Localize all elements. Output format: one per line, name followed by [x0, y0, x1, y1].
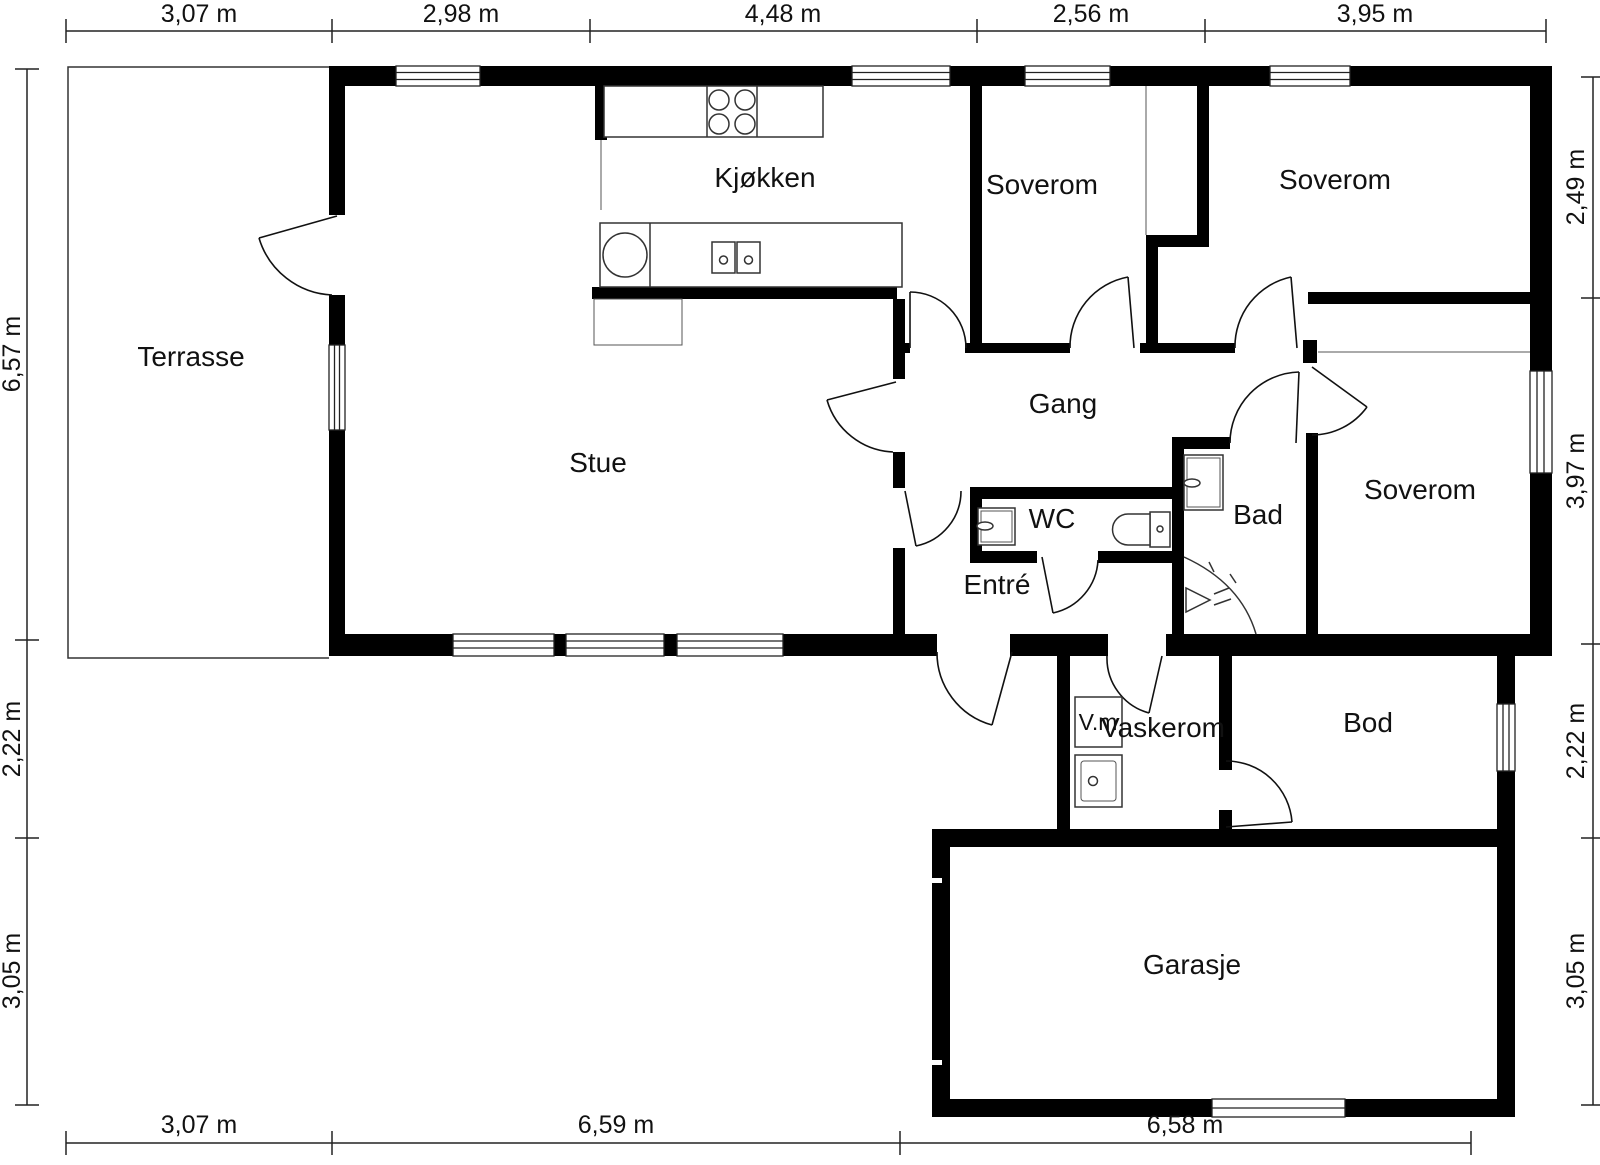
wall-segment — [480, 66, 852, 86]
wall-segment — [1146, 235, 1209, 247]
dim-top-1: 3,07 m — [161, 0, 237, 28]
room-label-bod: Bod — [1343, 707, 1393, 738]
wall-segment — [1146, 247, 1158, 353]
wall-segment — [1010, 634, 1108, 656]
dim-left-1: 6,57 m — [0, 316, 26, 392]
wall-segment — [329, 430, 345, 656]
dim-left-2: 2,22 m — [0, 701, 26, 777]
wall-segment — [970, 551, 1037, 563]
wall-segment — [1308, 292, 1530, 304]
window — [677, 634, 783, 656]
dim-right-2: 3,97 m — [1562, 433, 1590, 509]
wall-segment — [970, 86, 982, 353]
dim-bottom-2: 6,59 m — [578, 1111, 654, 1139]
dim-top-3: 4,48 m — [745, 0, 821, 28]
wall-notch — [932, 878, 942, 883]
room-label-kjokken: Kjøkken — [714, 162, 815, 193]
dim-bottom-3: 6,58 m — [1147, 1111, 1223, 1139]
floor-plan-canvas: Terrasse Stue Kjøkken Soverom Soverom So… — [0, 0, 1600, 1165]
room-label-vaskerom: Vaskerom — [1101, 712, 1225, 743]
window — [1025, 66, 1110, 86]
walls — [329, 66, 1552, 1117]
dim-left-3: 3,05 m — [0, 933, 26, 1009]
dim-top-2: 2,98 m — [423, 0, 499, 28]
wall-segment — [1172, 437, 1184, 634]
kitchen-counter-sink — [600, 223, 902, 287]
bath-shower — [1184, 557, 1256, 634]
room-label-terrasse: Terrasse — [137, 341, 244, 372]
floor-plan: Terrasse Stue Kjøkken Soverom Soverom So… — [0, 0, 1600, 1165]
door-bedroom3 — [1312, 367, 1367, 435]
wall-notch — [932, 1060, 942, 1065]
door-wc — [1042, 557, 1098, 613]
door-front — [937, 652, 1012, 725]
window — [1270, 66, 1350, 86]
wall-segment — [970, 487, 1184, 499]
wall-segment — [1197, 86, 1209, 247]
room-label-entre: Entré — [964, 569, 1031, 600]
laundry-sink — [1075, 755, 1122, 807]
kitchen-counter-stove — [604, 86, 823, 137]
wall-segment — [893, 299, 905, 379]
wall-segment — [1303, 340, 1317, 363]
room-label-bad: Bad — [1233, 499, 1283, 530]
wall-segment — [664, 634, 677, 656]
wall-segment — [1166, 634, 1552, 656]
window — [329, 345, 345, 430]
room-label-garasje: Garasje — [1143, 949, 1241, 980]
room-label-gang: Gang — [1029, 388, 1098, 419]
dim-top-5: 3,95 m — [1337, 0, 1413, 28]
dim-right-3: 2,22 m — [1562, 703, 1590, 779]
fixtures — [600, 86, 1256, 807]
door-storage — [1226, 761, 1292, 827]
wall-segment — [1530, 473, 1552, 656]
window — [852, 66, 950, 86]
wc-sink — [977, 508, 1015, 545]
wall-segment — [1497, 771, 1515, 1117]
room-label-wc: WC — [1029, 503, 1076, 534]
wall-segment — [1057, 656, 1070, 831]
wall-segment — [893, 548, 905, 634]
wall-segment — [932, 829, 1515, 847]
room-label-soverom2: Soverom — [1279, 164, 1391, 195]
wc-toilet — [1113, 512, 1171, 547]
room-label-soverom3: Soverom — [1364, 474, 1476, 505]
window — [396, 66, 480, 86]
room-label-stue: Stue — [569, 447, 627, 478]
wall-segment — [1497, 656, 1515, 704]
wall-segment — [783, 634, 937, 656]
dim-right-4: 3,05 m — [1562, 933, 1590, 1009]
kitchen-cabinet — [594, 299, 682, 345]
room-label-soverom1: Soverom — [986, 169, 1098, 200]
wall-segment — [329, 634, 453, 656]
dim-line-bottom — [66, 1131, 1471, 1155]
door-bedroom1 — [1070, 277, 1134, 348]
wall-segment — [1098, 551, 1184, 563]
wall-segment — [1530, 66, 1552, 371]
wall-segment — [950, 66, 1025, 86]
wall-segment — [1110, 66, 1270, 86]
wall-segment — [1306, 433, 1318, 634]
wall-segment — [329, 66, 345, 215]
wall-segment — [893, 452, 905, 488]
window — [566, 634, 664, 656]
door-living-room — [827, 382, 896, 452]
window — [1497, 704, 1515, 771]
wall-segment — [1350, 66, 1552, 86]
wall-segment — [554, 634, 566, 656]
window — [1530, 371, 1552, 473]
window — [1212, 1099, 1345, 1117]
dim-top-4: 2,56 m — [1053, 0, 1129, 28]
dim-right-1: 2,49 m — [1562, 149, 1590, 225]
bath-sink — [1184, 455, 1223, 510]
window — [453, 634, 554, 656]
door-bedroom2 — [1235, 277, 1297, 348]
door-bath — [1230, 372, 1299, 443]
dim-bottom-1: 3,07 m — [161, 1111, 237, 1139]
door-kitchen — [910, 292, 966, 348]
door-hall-entry — [905, 491, 961, 546]
door-terrace — [259, 216, 337, 295]
wall-segment — [1345, 1099, 1515, 1117]
wall-segment — [329, 295, 345, 345]
wall-segment — [592, 287, 897, 299]
